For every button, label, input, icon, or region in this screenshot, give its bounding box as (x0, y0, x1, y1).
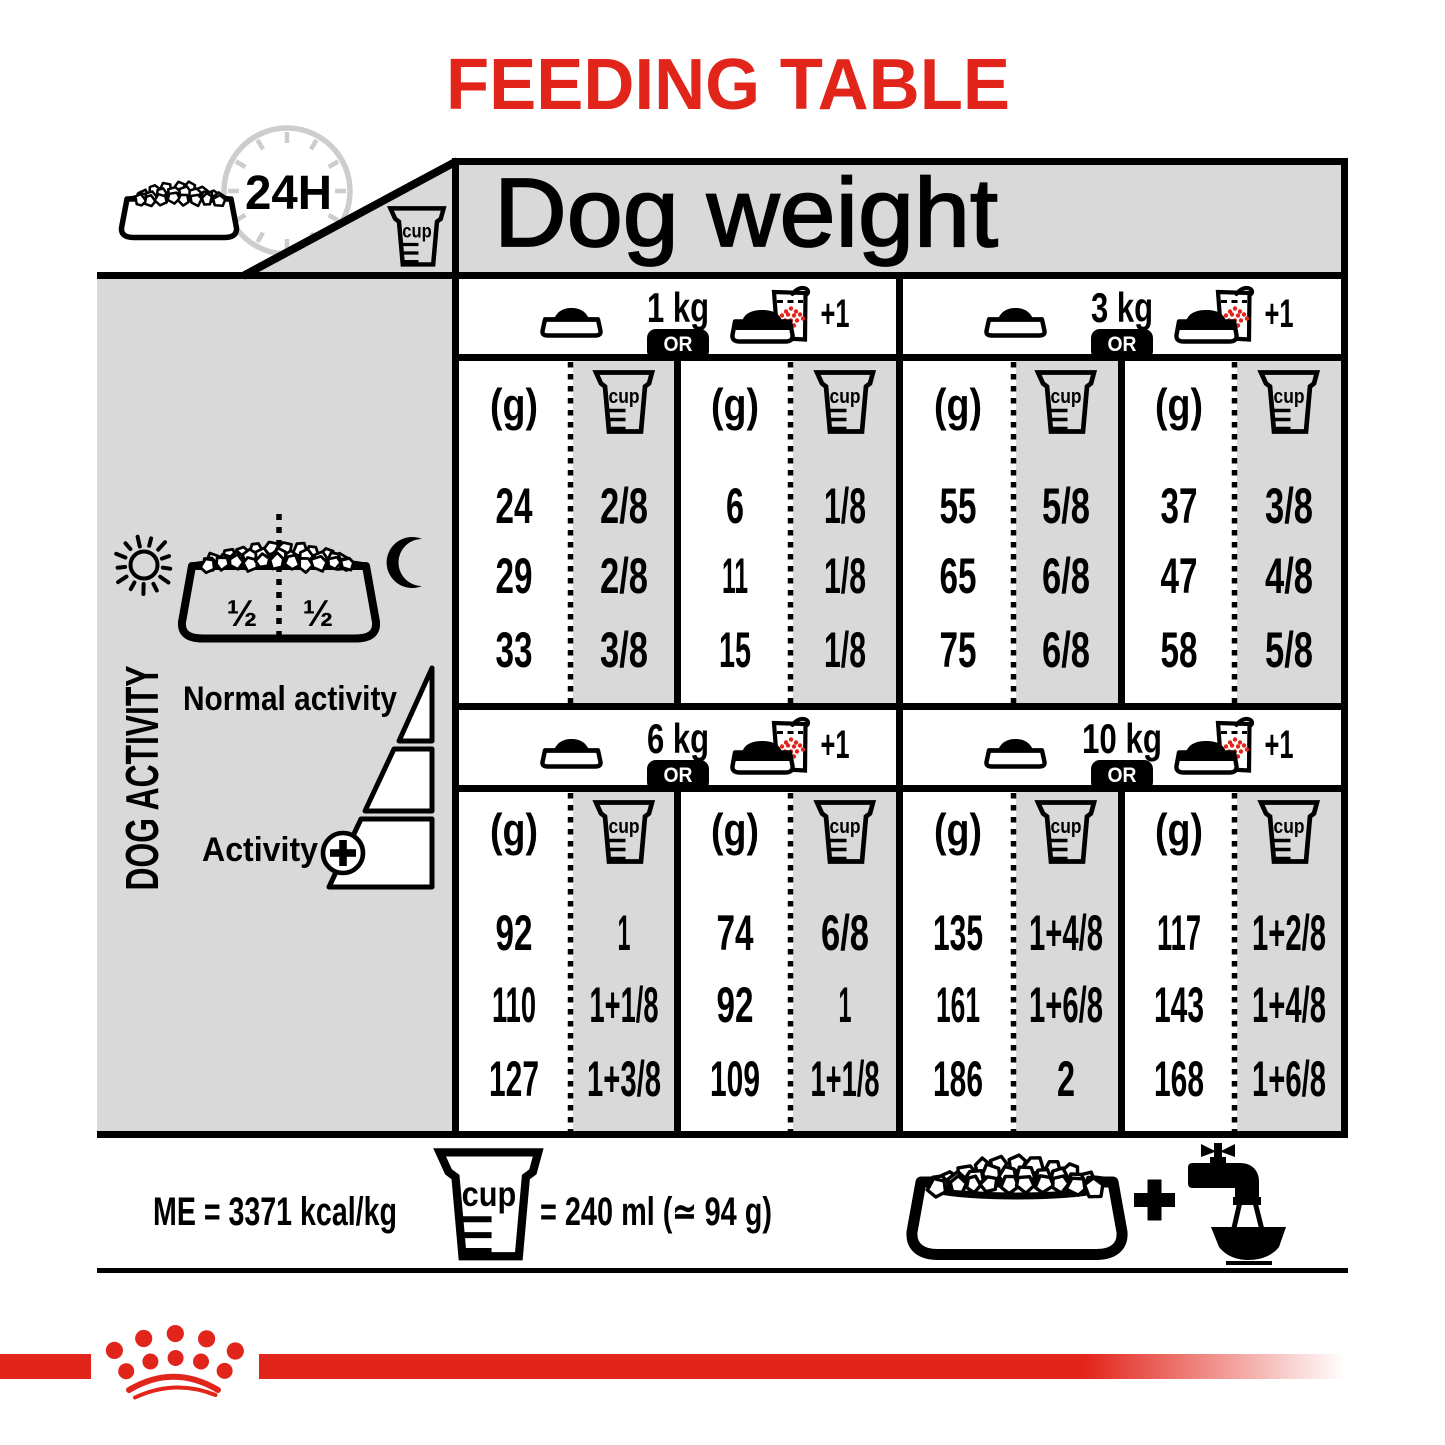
svg-text:92: 92 (717, 977, 754, 1033)
svg-text:15: 15 (719, 622, 751, 678)
svg-text:135: 135 (933, 905, 983, 961)
svg-text:1+1/8: 1+1/8 (811, 1051, 880, 1107)
svg-text:(g): (g) (934, 804, 982, 856)
svg-text:1: 1 (839, 977, 852, 1033)
svg-text:DOG ACTIVITY: DOG ACTIVITY (116, 666, 168, 891)
svg-text:OR: OR (664, 764, 693, 787)
svg-text:1 kg: 1 kg (647, 284, 709, 331)
svg-text:½: ½ (303, 593, 334, 634)
svg-text:1/8: 1/8 (824, 478, 866, 534)
svg-text:24H: 24H (245, 167, 332, 220)
svg-text:1+6/8: 1+6/8 (1029, 977, 1103, 1033)
svg-text:3 kg: 3 kg (1091, 284, 1153, 331)
svg-text:4/8: 4/8 (1265, 548, 1313, 604)
svg-text:1/8: 1/8 (824, 622, 866, 678)
svg-text:+1: +1 (1265, 292, 1294, 336)
svg-text:OR: OR (1108, 333, 1137, 356)
svg-text:161: 161 (936, 977, 980, 1033)
svg-text:6/8: 6/8 (1042, 622, 1090, 678)
svg-text:143: 143 (1154, 977, 1204, 1033)
svg-text:75: 75 (940, 622, 977, 678)
svg-text:117: 117 (1157, 905, 1201, 961)
svg-text:74: 74 (717, 905, 754, 961)
svg-text:10 kg: 10 kg (1082, 715, 1162, 762)
svg-text:24: 24 (496, 478, 533, 534)
svg-text:65: 65 (940, 548, 977, 604)
svg-text:Activity: Activity (202, 831, 318, 869)
svg-text:3/8: 3/8 (1265, 478, 1313, 534)
svg-text:6/8: 6/8 (1042, 548, 1090, 604)
svg-text:(g): (g) (934, 379, 982, 431)
svg-text:½: ½ (227, 593, 258, 634)
svg-text:29: 29 (496, 548, 533, 604)
svg-text:2/8: 2/8 (600, 548, 648, 604)
svg-text:(g): (g) (1155, 379, 1203, 431)
svg-text:6/8: 6/8 (821, 905, 869, 961)
svg-text:33: 33 (496, 622, 533, 678)
svg-text:6: 6 (726, 478, 744, 534)
svg-text:168: 168 (1154, 1051, 1204, 1107)
svg-text:FEEDING TABLE: FEEDING TABLE (446, 45, 1010, 125)
svg-text:Dog weight: Dog weight (494, 158, 998, 267)
svg-text:11: 11 (722, 548, 748, 604)
svg-text:1+4/8: 1+4/8 (1252, 977, 1326, 1033)
svg-text:Normal activity: Normal activity (183, 680, 397, 718)
svg-text:127: 127 (489, 1051, 539, 1107)
svg-text:6 kg: 6 kg (647, 715, 709, 762)
svg-text:37: 37 (1161, 478, 1198, 534)
svg-text:(g): (g) (1155, 804, 1203, 856)
svg-text:+1: +1 (821, 292, 850, 336)
svg-text:1: 1 (618, 905, 631, 961)
svg-text:1+4/8: 1+4/8 (1029, 905, 1103, 961)
svg-text:58: 58 (1161, 622, 1198, 678)
svg-text:2/8: 2/8 (600, 478, 648, 534)
svg-text:47: 47 (1161, 548, 1198, 604)
svg-text:110: 110 (492, 977, 536, 1033)
svg-text:1+1/8: 1+1/8 (590, 977, 659, 1033)
svg-text:109: 109 (710, 1051, 760, 1107)
svg-text:(g): (g) (490, 804, 538, 856)
svg-text:1+6/8: 1+6/8 (1252, 1051, 1326, 1107)
svg-text:(g): (g) (490, 379, 538, 431)
svg-text:OR: OR (1108, 764, 1137, 787)
svg-text:5/8: 5/8 (1265, 622, 1313, 678)
svg-text:1/8: 1/8 (824, 548, 866, 604)
svg-text:92: 92 (496, 905, 533, 961)
svg-text:2: 2 (1057, 1051, 1075, 1107)
svg-text:(g): (g) (711, 379, 759, 431)
svg-text:OR: OR (664, 333, 693, 356)
svg-text:1+3/8: 1+3/8 (587, 1051, 661, 1107)
svg-text:(g): (g) (711, 804, 759, 856)
svg-text:+1: +1 (821, 723, 850, 767)
svg-text:186: 186 (933, 1051, 983, 1107)
svg-text:5/8: 5/8 (1042, 478, 1090, 534)
svg-text:ME = 3371 kcal/kg: ME = 3371 kcal/kg (153, 1190, 397, 1234)
svg-text:+1: +1 (1265, 723, 1294, 767)
svg-text:3/8: 3/8 (600, 622, 648, 678)
svg-text:55: 55 (940, 478, 977, 534)
svg-text:1+2/8: 1+2/8 (1252, 905, 1326, 961)
svg-text:= 240 ml (≃ 94 g): = 240 ml (≃ 94 g) (540, 1190, 772, 1234)
